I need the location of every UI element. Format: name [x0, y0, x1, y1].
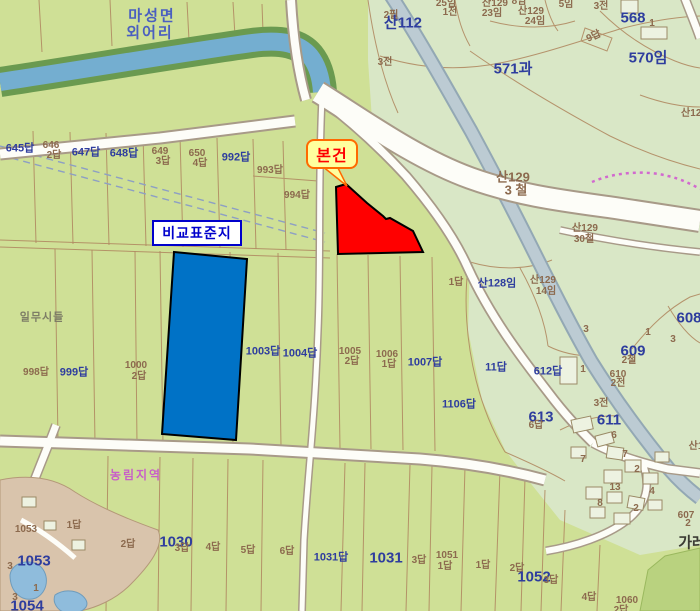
- comparison-parcel-highlight: [162, 252, 247, 440]
- comparison-callout: 비교표준지: [152, 220, 242, 246]
- map-base: [0, 0, 700, 611]
- cadastral-map: 마성면외어리2필산11225임1전8임산12923임산12924임5임3전156…: [0, 0, 700, 611]
- subject-callout: 본건: [306, 139, 358, 169]
